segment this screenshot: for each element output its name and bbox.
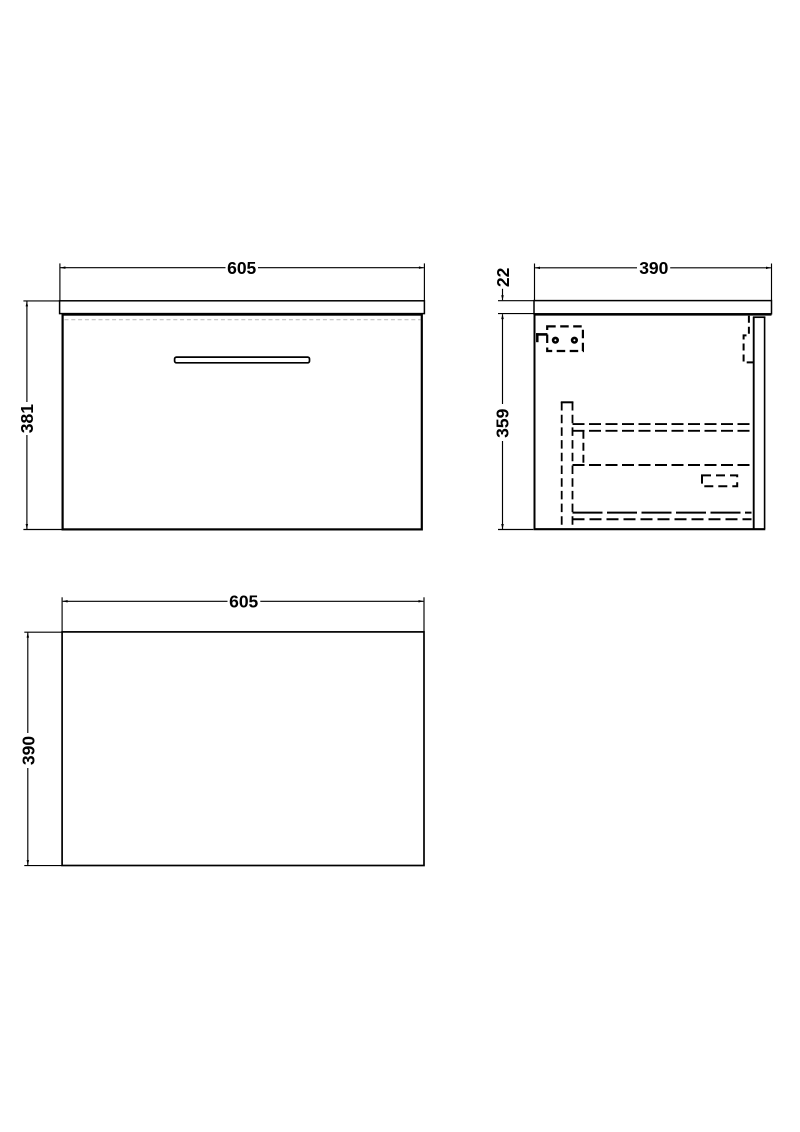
svg-text:359: 359 xyxy=(492,408,512,437)
svg-text:390: 390 xyxy=(639,258,668,278)
svg-text:605: 605 xyxy=(229,592,258,612)
svg-text:605: 605 xyxy=(227,258,256,278)
svg-text:22: 22 xyxy=(493,267,513,287)
svg-text:381: 381 xyxy=(17,404,37,433)
svg-text:390: 390 xyxy=(18,736,38,765)
